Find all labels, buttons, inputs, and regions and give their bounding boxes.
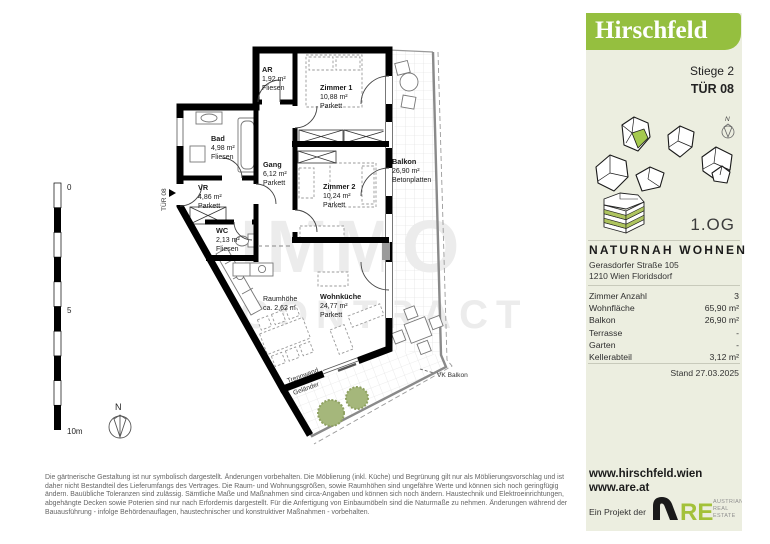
vk-balkon-label: VK Balkon xyxy=(437,372,468,379)
fact-label: Balkon xyxy=(589,314,616,326)
stiege-label: Stiege 2 xyxy=(690,64,734,78)
table-row: Terrasse - xyxy=(589,327,739,339)
brand-logo: Hirschfeld xyxy=(586,13,741,50)
svg-text:4,98 m²: 4,98 m² xyxy=(211,145,235,152)
building-stack-icon xyxy=(604,193,644,233)
room-label: Gang xyxy=(263,160,282,169)
are-logo-line1: AUSTRIAN xyxy=(713,499,742,505)
fact-label: Zimmer Anzahl xyxy=(589,290,647,302)
scale-0: 0 xyxy=(67,183,72,192)
svg-text:Parkett: Parkett xyxy=(323,202,345,209)
building-footprint xyxy=(596,155,628,191)
svg-text:Parkett: Parkett xyxy=(320,103,342,110)
svg-text:6,12 m²: 6,12 m² xyxy=(263,171,287,178)
fact-value: - xyxy=(736,327,739,339)
room-label: Zimmer 2 xyxy=(323,182,355,191)
floorplan-page: IMMO CONTRACT xyxy=(0,0,770,544)
raumhoehe-label: Raumhöhe xyxy=(263,296,297,303)
room-label: AR xyxy=(262,65,273,74)
svg-text:10,88 m²: 10,88 m² xyxy=(320,94,348,101)
room-label: WC xyxy=(216,226,229,235)
disclaimer-line: daher nicht Bestandteil des Lieferumfang… xyxy=(45,483,580,492)
fact-value: - xyxy=(736,339,739,351)
raumhoehe-value: ca. 2,62 m xyxy=(263,305,296,312)
svg-text:4,86 m²: 4,86 m² xyxy=(198,194,222,201)
minimap-compass-icon: N xyxy=(722,116,734,138)
room-label: Wohnküche xyxy=(320,292,361,301)
svg-text:2,13 m²: 2,13 m² xyxy=(216,237,240,244)
project-by-label: Ein Projekt der xyxy=(589,507,646,517)
scale-10m: 10m xyxy=(67,427,83,436)
table-row: Balkon 26,90 m² xyxy=(589,314,739,326)
compass-icon: N xyxy=(109,402,131,438)
are-logo: RE AUSTRIAN REAL ESTATE xyxy=(650,494,742,524)
status-date: Stand 27.03.2025 xyxy=(670,368,739,378)
fact-value: 65,90 m² xyxy=(705,302,739,314)
tuer-label: TÜR 08 xyxy=(691,82,734,96)
svg-text:Parkett: Parkett xyxy=(263,180,285,187)
disclaimer-line: Die gärtnerische Gestaltung ist nur symb… xyxy=(45,474,580,483)
disclaimer-line: ändern. Bauübliche Toleranzen sind zuläs… xyxy=(45,491,580,500)
svg-text:Fliesen: Fliesen xyxy=(211,154,234,161)
svg-text:Parkett: Parkett xyxy=(320,312,342,319)
are-logo-line2: REAL xyxy=(713,506,729,512)
svg-text:Fliesen: Fliesen xyxy=(262,85,285,92)
are-logo-line3: ESTATE xyxy=(713,513,736,519)
entry-arrow-icon xyxy=(169,189,176,197)
website-hirschfeld: www.hirschfeld.wien xyxy=(589,468,702,480)
floorplan-drawing: IMMO CONTRACT xyxy=(0,0,580,544)
svg-text:Parkett: Parkett xyxy=(198,203,220,210)
are-logo-a-mark xyxy=(653,497,678,520)
tree-icon xyxy=(346,387,368,409)
are-logo-re: RE xyxy=(680,499,713,524)
divider xyxy=(588,285,740,286)
building-footprint xyxy=(668,126,694,157)
floor-level-label: 1.OG xyxy=(690,215,735,235)
disclaimer-line: Bauausführung - infolge Behördenauflagen… xyxy=(45,509,580,518)
tree-icon xyxy=(318,400,344,426)
entry-door-label: TÜR 08 xyxy=(160,188,168,211)
info-sidebar: Hirschfeld Stiege 2 TÜR 08 xyxy=(586,13,742,531)
address-line1: Gerasdorfer Straße 105 xyxy=(589,260,679,270)
fact-label: Garten xyxy=(589,339,616,351)
website-are: www.are.at xyxy=(589,482,649,494)
fact-value: 3,12 m² xyxy=(710,351,739,363)
scale-5: 5 xyxy=(67,306,72,315)
fact-value: 3 xyxy=(734,290,739,302)
svg-text:26,90 m²: 26,90 m² xyxy=(392,168,420,175)
divider xyxy=(588,363,740,364)
svg-text:24,77 m²: 24,77 m² xyxy=(320,303,348,310)
fact-label: Wohnfläche xyxy=(589,302,635,314)
table-row: Kellerabteil 3,12 m² xyxy=(589,351,739,363)
scale-bar: 0 5 10m xyxy=(54,183,83,436)
building-footprint xyxy=(636,167,664,191)
room-label: VR xyxy=(198,183,209,192)
fact-label: Kellerabteil xyxy=(589,351,632,363)
svg-text:Fliesen: Fliesen xyxy=(216,246,239,253)
divider xyxy=(588,240,740,241)
table-row: Garten - xyxy=(589,339,739,351)
disclaimer-text: Die gärtnerische Gestaltung ist nur symb… xyxy=(45,474,580,518)
room-label: Bad xyxy=(211,134,225,143)
table-row: Wohnfläche 65,90 m² xyxy=(589,302,739,314)
fact-value: 26,90 m² xyxy=(705,314,739,326)
svg-text:10,24 m²: 10,24 m² xyxy=(323,193,351,200)
compass-n-label: N xyxy=(115,402,122,412)
room-label: Zimmer 1 xyxy=(320,83,352,92)
minimap-n-label: N xyxy=(725,116,730,123)
facts-table: Zimmer Anzahl 3 Wohnfläche 65,90 m² Balk… xyxy=(589,290,739,363)
svg-text:1,92 m²: 1,92 m² xyxy=(262,76,286,83)
address-line2: 1210 Wien Floridsdorf xyxy=(589,271,672,281)
entry-opening xyxy=(175,184,185,205)
project-name: NATURNAH WOHNEN xyxy=(589,243,747,257)
table-row: Zimmer Anzahl 3 xyxy=(589,290,739,302)
disclaimer-line: abgehängte Decken sowie Poterien sind nu… xyxy=(45,500,580,509)
svg-text:Betonplatten: Betonplatten xyxy=(392,177,431,184)
room-label: Balkon xyxy=(392,157,416,166)
fact-label: Terrasse xyxy=(589,327,622,339)
